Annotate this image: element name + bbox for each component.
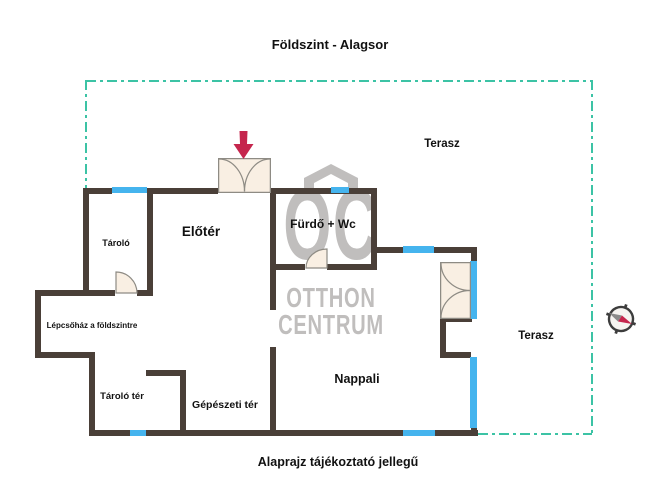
wall-segment (327, 264, 377, 270)
room-label-terasz-top: Terasz (424, 138, 460, 151)
wall-segment (270, 188, 276, 310)
window (331, 187, 349, 193)
wall-segment (37, 290, 115, 296)
wall-segment (270, 347, 276, 436)
wall-segment (270, 264, 305, 270)
terrace-boundary-top (86, 80, 593, 82)
window (403, 246, 434, 253)
interior-door-bathroom (305, 248, 328, 269)
wall-segment (83, 188, 89, 296)
room-label-eloter: Előtér (182, 225, 220, 240)
entrance-arrow-icon (233, 131, 254, 159)
terrace-boundary-left (85, 80, 87, 190)
window-living-room (470, 357, 477, 428)
floor-plan: Földszint - Alagsor Alaprajz tájékoztató… (0, 0, 668, 500)
terrace-boundary-bottom (478, 433, 592, 435)
room-label-furdo-wc: Fürdő + Wc (290, 218, 356, 231)
wall-segment (371, 247, 403, 253)
wall-segment (137, 290, 153, 296)
compass-icon (603, 301, 639, 337)
window (130, 430, 146, 436)
room-label-gepeszeti-ter: Gépészeti tér (192, 400, 258, 412)
entrance-door (218, 158, 271, 193)
wall-segment (270, 188, 371, 194)
interior-door-storage (115, 271, 138, 294)
wall-segment (35, 352, 95, 358)
room-label-tarolo-ter: Tároló tér (100, 392, 144, 402)
window-glazing-french-door (470, 261, 477, 319)
watermark-line2: CENTRUM (278, 311, 384, 339)
wall-segment (89, 352, 95, 436)
footer-disclaimer: Alaprajz tájékoztató jellegű (258, 456, 418, 470)
terrace-boundary-right (591, 80, 593, 435)
french-door (440, 262, 471, 319)
window (403, 430, 435, 436)
room-label-nappali: Nappali (334, 373, 379, 387)
page-title: Földszint - Alagsor (272, 38, 389, 52)
wall-segment (371, 188, 377, 270)
wall-segment (180, 370, 186, 436)
watermark-line1: OTTHON (286, 284, 375, 312)
room-label-terasz-right: Terasz (518, 330, 554, 343)
wall-segment (147, 188, 153, 296)
wall-segment (440, 352, 471, 358)
room-label-tarolo: Tároló (102, 239, 130, 249)
wall-segment (147, 188, 218, 194)
wall-segment (35, 290, 41, 358)
room-label-lepcsohaz: Lépcsőház a földszintre (47, 322, 138, 331)
window (112, 187, 147, 193)
wall-segment (89, 430, 130, 436)
